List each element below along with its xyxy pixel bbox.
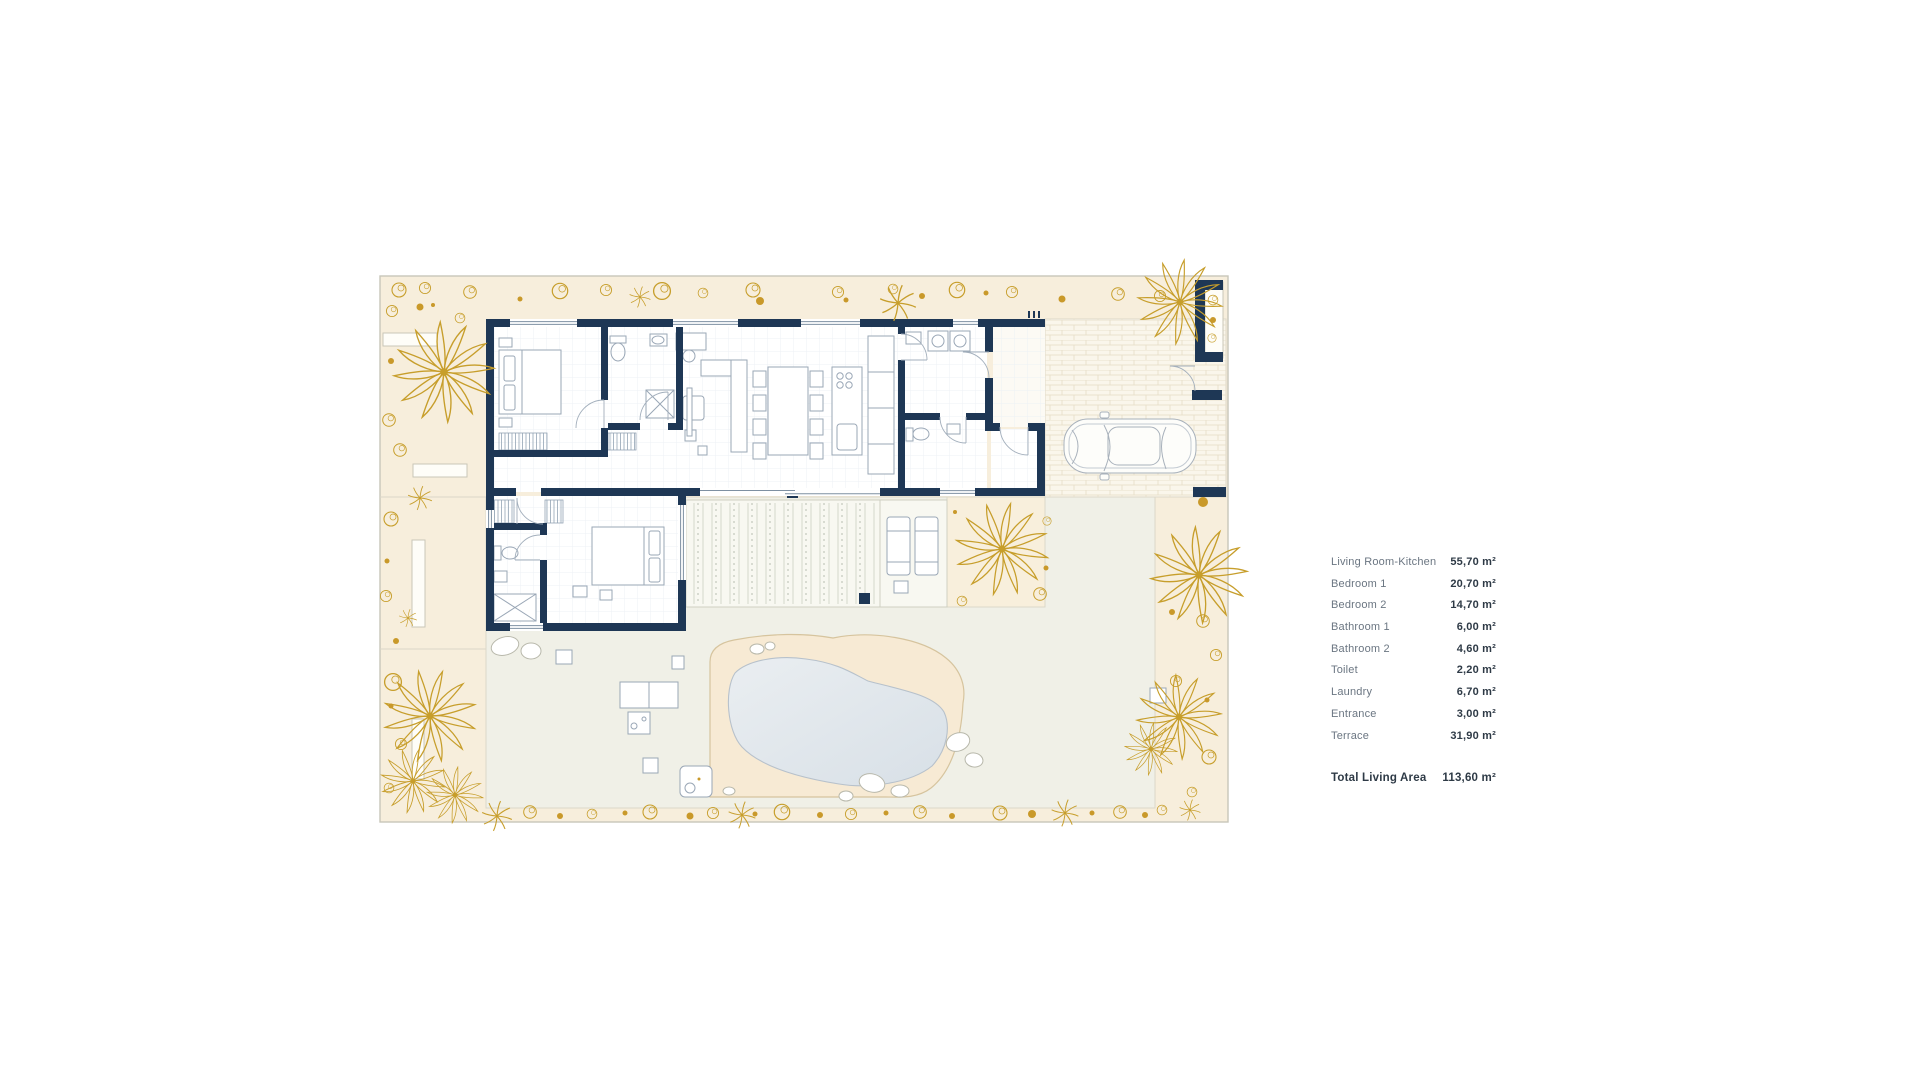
nightstand (499, 418, 512, 427)
outdoor-shower (680, 766, 712, 797)
side-table (894, 581, 908, 593)
legend-row: Bedroom 2 14,70 m² (1331, 599, 1496, 621)
legend-row: Living Room-Kitchen 55,70 m² (1331, 556, 1496, 578)
room-area: 31,90 m² (1450, 730, 1496, 742)
room-area: 6,00 m² (1457, 621, 1496, 633)
room-area: 55,70 m² (1450, 556, 1496, 568)
room-area: 14,70 m² (1450, 599, 1496, 611)
sofa (731, 360, 747, 452)
dining-table (768, 367, 808, 455)
room-label: Bathroom 1 (1331, 621, 1390, 633)
sliding-door (700, 488, 880, 496)
room-label: Bathroom 2 (1331, 643, 1390, 655)
room-label: Bedroom 1 (1331, 578, 1387, 590)
legend-row: Terrace 31,90 m² (1331, 730, 1496, 752)
nightstand (499, 338, 512, 347)
room-label: Bedroom 2 (1331, 599, 1387, 611)
kitchen-counter (868, 336, 894, 474)
wardrobe (499, 433, 547, 450)
dryer (950, 331, 970, 351)
bbq (628, 712, 650, 734)
room-area: 20,70 m² (1450, 578, 1496, 590)
legend-row: Entrance 3,00 m² (1331, 708, 1496, 730)
room-area: 6,70 m² (1457, 686, 1496, 698)
washer (928, 331, 948, 351)
room-label: Laundry (1331, 686, 1372, 698)
page: Living Room-Kitchen 55,70 m² Bedroom 1 2… (0, 0, 1920, 1080)
area-legend: Living Room-Kitchen 55,70 m² Bedroom 1 2… (1331, 556, 1496, 784)
total-area: 113,60 m² (1442, 772, 1496, 784)
legend-total-row: Total Living Area 113,60 m² (1331, 772, 1496, 784)
entry-walkway (993, 311, 1045, 427)
floor-plan (0, 0, 1920, 1080)
island-sink (837, 424, 857, 450)
room-label: Toilet (1331, 664, 1358, 676)
legend-row: Bathroom 2 4,60 m² (1331, 643, 1496, 665)
closet (608, 433, 636, 450)
car (1064, 412, 1196, 480)
legend-row: Bathroom 1 6,00 m² (1331, 621, 1496, 643)
room-label: Living Room-Kitchen (1331, 556, 1436, 568)
legend-row: Laundry 6,70 m² (1331, 686, 1496, 708)
room-label: Entrance (1331, 708, 1377, 720)
laundry-sink (906, 332, 921, 344)
pergola-slats (694, 503, 874, 604)
legend-row: Bedroom 1 20,70 m² (1331, 578, 1496, 600)
closet (545, 500, 563, 523)
closet (494, 500, 514, 523)
terrace (686, 487, 947, 607)
tv-unit (687, 388, 692, 436)
sink (494, 571, 507, 582)
armchair (683, 396, 704, 420)
basin (947, 424, 960, 434)
room-area: 2,20 m² (1457, 664, 1496, 676)
total-label: Total Living Area (1331, 772, 1426, 784)
room-area: 4,60 m² (1457, 643, 1496, 655)
room-label: Terrace (1331, 730, 1369, 742)
room-area: 3,00 m² (1457, 708, 1496, 720)
legend-row: Toilet 2,20 m² (1331, 664, 1496, 686)
pergola-post (859, 593, 870, 604)
